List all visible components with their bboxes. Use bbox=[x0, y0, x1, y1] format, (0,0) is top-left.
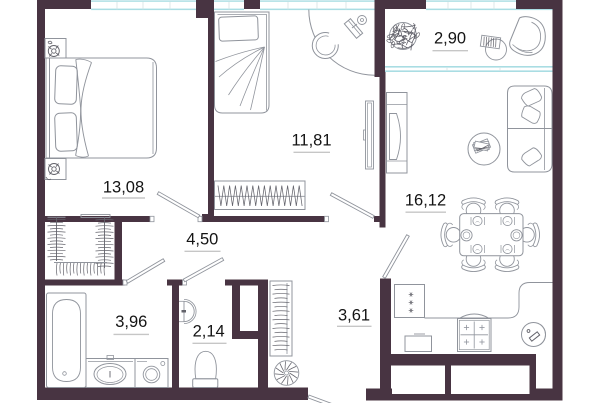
svg-text:4,50: 4,50 bbox=[186, 231, 218, 249]
svg-text:16,12: 16,12 bbox=[405, 192, 446, 210]
svg-text:11,81: 11,81 bbox=[291, 131, 331, 149]
svg-text:3,61: 3,61 bbox=[338, 306, 370, 324]
svg-text:13,08: 13,08 bbox=[103, 179, 144, 197]
svg-text:2,90: 2,90 bbox=[434, 30, 466, 48]
svg-text:3,96: 3,96 bbox=[115, 313, 147, 331]
svg-text:2,14: 2,14 bbox=[193, 323, 225, 341]
